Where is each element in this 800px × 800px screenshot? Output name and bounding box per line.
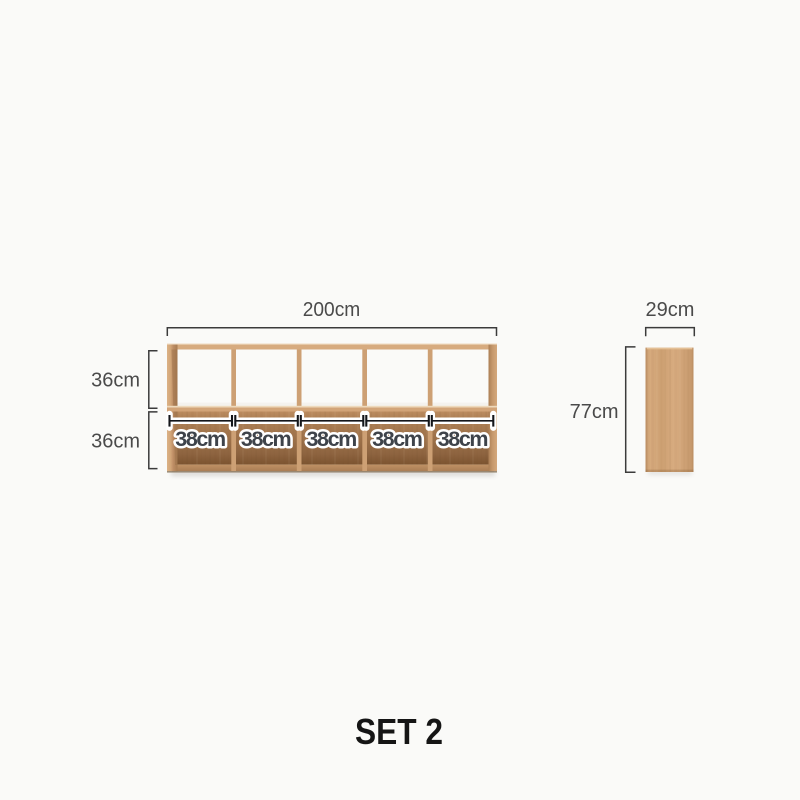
svg-text:38cm: 38cm (307, 427, 357, 451)
svg-text:77cm: 77cm (570, 401, 619, 423)
svg-text:38cm: 38cm (372, 427, 422, 451)
svg-text:200cm: 200cm (303, 299, 361, 321)
svg-text:36cm: 36cm (91, 430, 140, 452)
svg-text:38cm: 38cm (175, 427, 225, 451)
svg-text:38cm: 38cm (241, 427, 291, 451)
svg-text:29cm: 29cm (646, 299, 695, 321)
svg-text:36cm: 36cm (91, 370, 140, 392)
svg-text:38cm: 38cm (438, 427, 488, 451)
svg-text:SET 2: SET 2 (355, 711, 443, 752)
